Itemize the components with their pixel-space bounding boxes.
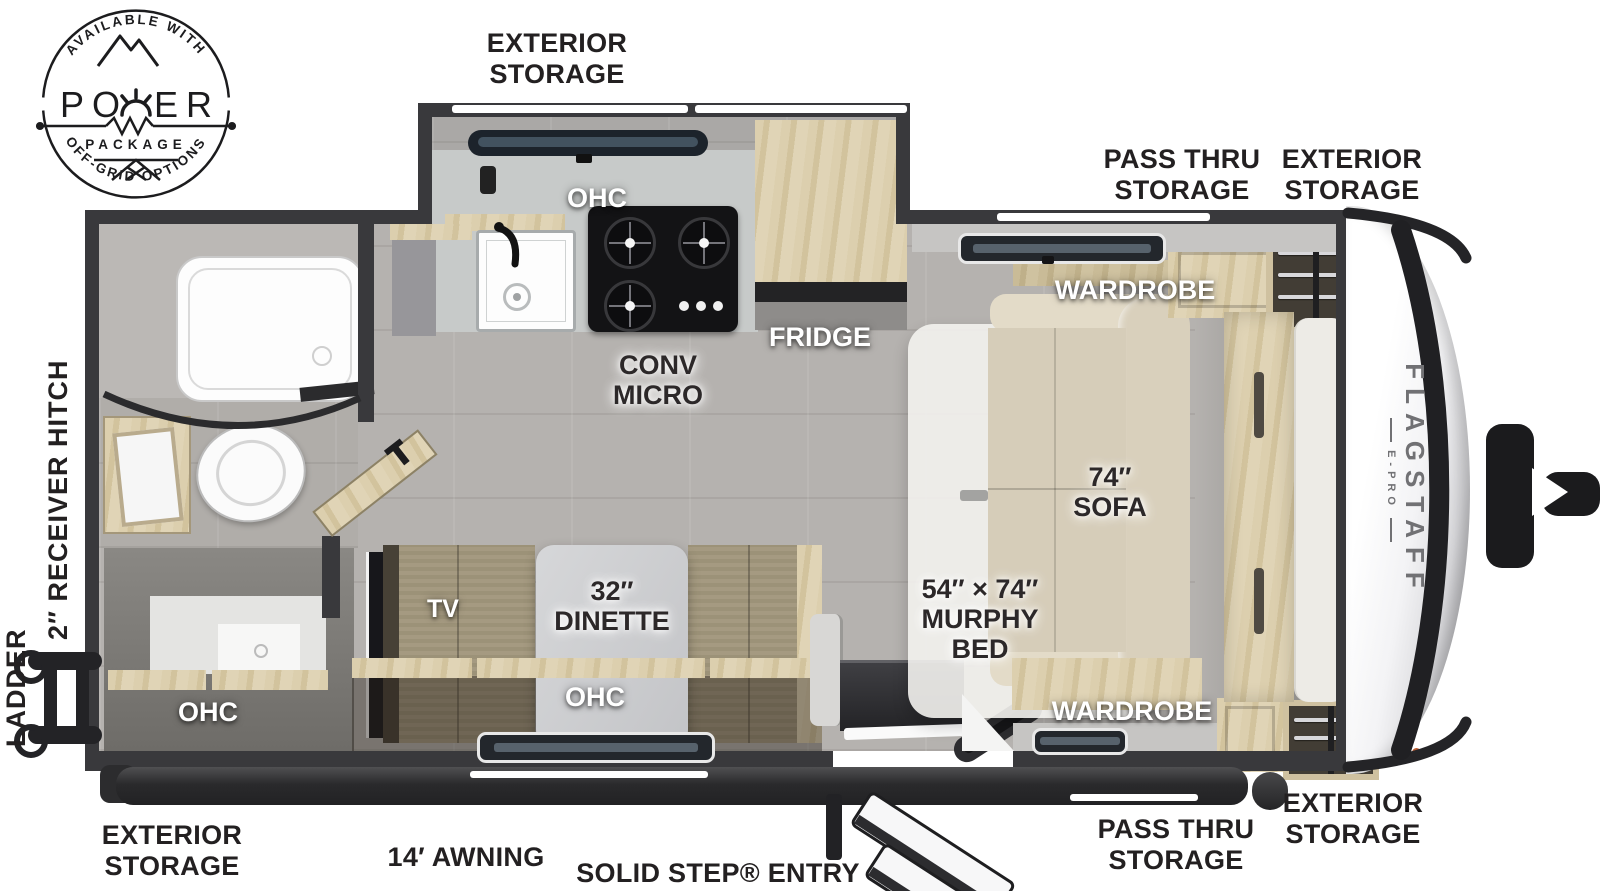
brand-dash [1391,418,1393,442]
brand-mark: FLAGSTAFF E-PRO [1385,300,1431,660]
door-swing-wedge [962,694,1014,751]
label-tv: TV [408,595,478,624]
brand-name: FLAGSTAFF [1400,363,1431,597]
label-receiver-hitch: 2″ RECEIVER HITCH [43,352,79,648]
label-conv-micro: CONV MICRO [558,350,758,410]
label-exterior-storage-top-right: EXTERIOR STORAGE [1252,144,1452,206]
label-dinette: 32″ DINETTE [512,576,712,636]
label-wardrobe-top: WARDROBE [1035,275,1235,306]
floorplan-stage: AVAILABLE WITH OFF-GRID OPTIONS PO ER PA… [0,0,1600,891]
brand-sub-text: E-PRO [1386,450,1398,510]
faucet-base [494,222,504,232]
faucet-icon [499,228,516,264]
brand-sub: E-PRO [1386,418,1398,542]
step-post [826,794,842,860]
label-exterior-storage-bottom-left: EXTERIOR STORAGE [72,820,272,882]
label-ohc-dinette: OHC [545,682,645,713]
label-exterior-storage-top: EXTERIOR STORAGE [457,28,657,90]
label-ohc-kitchen: OHC [547,183,647,214]
overlay-curves [0,0,1600,891]
label-exterior-storage-bottom-right: EXTERIOR STORAGE [1253,788,1453,850]
label-wardrobe-bottom: WARDROBE [1032,696,1232,727]
label-ladder: LADDER [1,626,31,750]
label-murphy-bed: 54″ × 74″ MURPHY BED [880,574,1080,664]
label-pass-thru-bottom: PASS THRU STORAGE [1076,814,1276,876]
label-sofa: 74″ SOFA [1010,462,1210,522]
shower-door-arc [104,394,360,426]
label-solid-step-entry: SOLID STEP® ENTRY [543,858,893,889]
label-fridge: FRIDGE [745,322,895,353]
label-ohc-rear: OHC [158,697,258,728]
hitch-notch [1532,468,1568,516]
brand-dash [1391,518,1393,542]
